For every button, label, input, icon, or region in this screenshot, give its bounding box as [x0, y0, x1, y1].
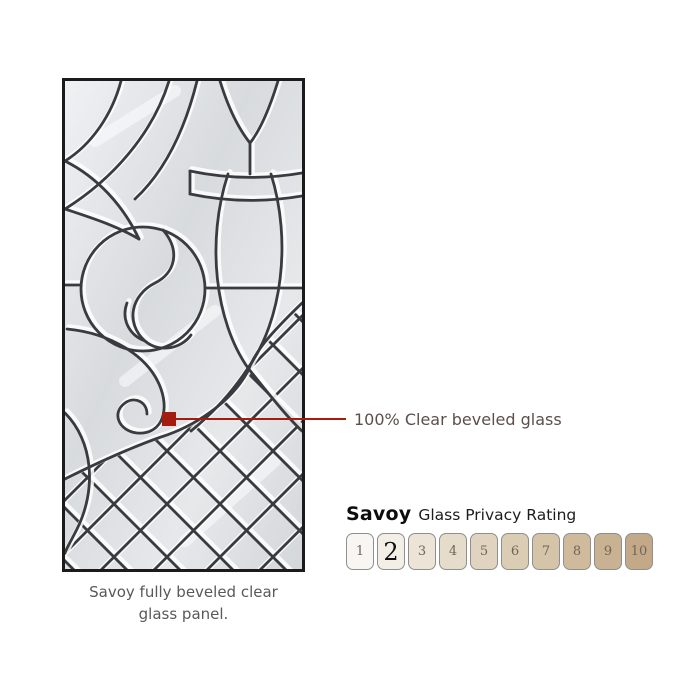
privacy-level-number: 10: [631, 544, 648, 559]
privacy-level-9: 9: [594, 533, 622, 570]
privacy-rating-heading: Savoy Glass Privacy Rating: [346, 503, 576, 525]
privacy-level-number: 6: [511, 544, 519, 559]
privacy-level-1: 1: [346, 533, 374, 570]
privacy-level-number: 5: [480, 544, 488, 559]
callout-line: [176, 418, 346, 420]
privacy-level-number: 9: [604, 544, 612, 559]
privacy-level-4: 4: [439, 533, 467, 570]
panel-caption-line2: glass panel.: [52, 603, 315, 625]
privacy-level-number: 2: [383, 538, 398, 566]
privacy-level-number: 1: [356, 544, 364, 559]
privacy-level-number: 3: [418, 544, 426, 559]
privacy-level-number: 4: [449, 544, 457, 559]
privacy-level-2: 2: [377, 533, 405, 570]
callout-marker: [162, 412, 176, 426]
callout-label: 100% Clear beveled glass: [354, 410, 562, 429]
privacy-level-10: 10: [625, 533, 653, 570]
privacy-level-number: 8: [573, 544, 581, 559]
privacy-level-7: 7: [532, 533, 560, 570]
privacy-level-6: 6: [501, 533, 529, 570]
glass-panel: [62, 78, 305, 572]
privacy-rating-product-name: Savoy: [346, 503, 411, 525]
beveled-glass-artwork: [65, 81, 302, 569]
privacy-level-number: 7: [542, 544, 550, 559]
panel-caption-line1: Savoy fully beveled clear: [52, 581, 315, 603]
privacy-level-8: 8: [563, 533, 591, 570]
privacy-level-5: 5: [470, 533, 498, 570]
privacy-scale: 12345678910: [346, 533, 653, 570]
privacy-rating-title: Glass Privacy Rating: [418, 506, 576, 524]
panel-caption: Savoy fully beveled clear glass panel.: [52, 581, 315, 625]
privacy-level-3: 3: [408, 533, 436, 570]
